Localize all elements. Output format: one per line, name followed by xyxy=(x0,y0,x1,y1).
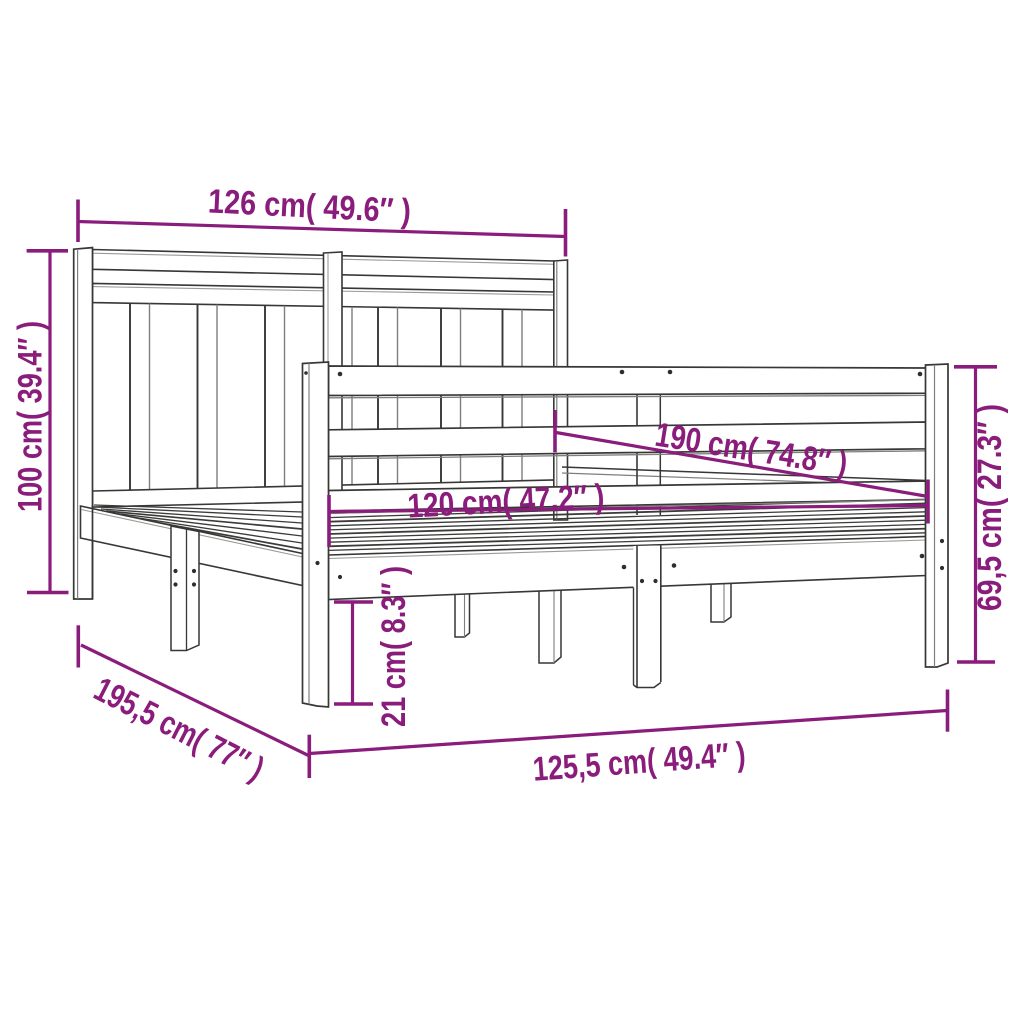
svg-text:21 cm( 8.3″ ): 21 cm( 8.3″ ) xyxy=(375,566,413,727)
svg-text:100 cm( 39.4″ ): 100 cm( 39.4″ ) xyxy=(12,321,50,512)
svg-text:69,5 cm( 27.3″ ): 69,5 cm( 27.3″ ) xyxy=(971,404,1009,611)
